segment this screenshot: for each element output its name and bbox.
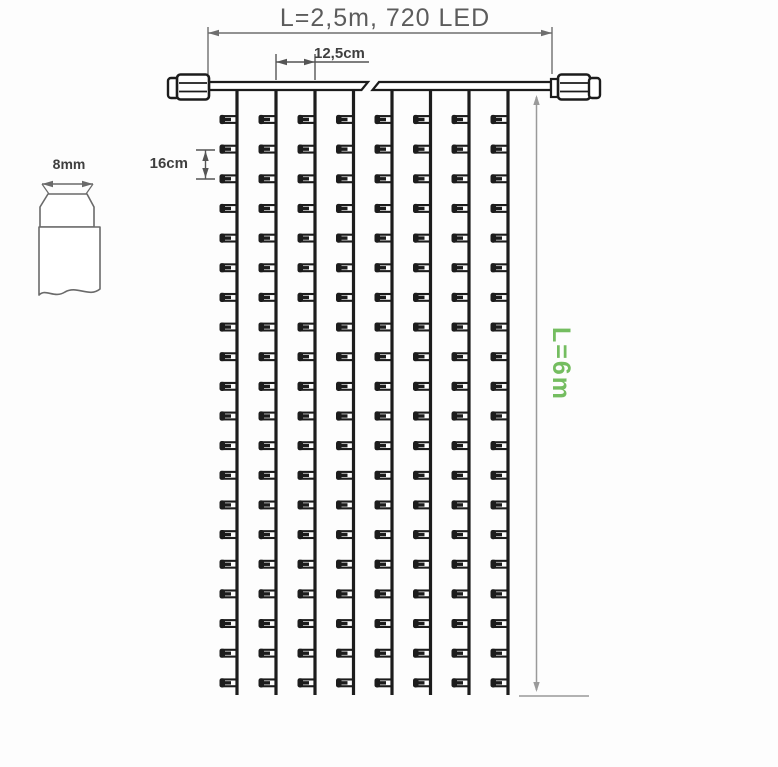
- led-bulb: [259, 530, 276, 539]
- led-bulb: [298, 619, 315, 628]
- led-bulb: [413, 145, 430, 154]
- connector-left-body: [177, 75, 209, 100]
- led-bulb: [298, 382, 315, 391]
- led-bulb: [413, 441, 430, 450]
- led-bulb: [336, 204, 353, 213]
- led-bulb: [413, 234, 430, 243]
- led-bulb: [298, 411, 315, 420]
- cable-right-segment: [373, 82, 552, 90]
- led-bulb: [220, 145, 237, 154]
- led-bulb: [336, 174, 353, 183]
- led-bulb: [491, 441, 508, 450]
- led-bulb: [413, 619, 430, 628]
- led-bulb: [491, 322, 508, 331]
- led-bulb: [336, 500, 353, 509]
- led-bulb: [491, 174, 508, 183]
- led-bulb: [298, 649, 315, 658]
- led-bulb: [259, 322, 276, 331]
- led-bulb: [336, 293, 353, 302]
- led-bulb: [413, 322, 430, 331]
- led-bulb: [259, 500, 276, 509]
- strand: [375, 89, 393, 695]
- led-bulb: [220, 174, 237, 183]
- led-bulb: [298, 530, 315, 539]
- led-bulb: [491, 145, 508, 154]
- led-bulb: [491, 530, 508, 539]
- led-bulb: [259, 174, 276, 183]
- led-bulb: [452, 411, 469, 420]
- led-bulb: [259, 471, 276, 480]
- led-bulb: [336, 352, 353, 361]
- strand: [491, 89, 509, 695]
- led-bulb: [452, 263, 469, 272]
- led-bulb: [298, 115, 315, 124]
- led-bulb: [259, 619, 276, 628]
- led-bulb: [298, 263, 315, 272]
- strand: [413, 89, 431, 695]
- top-width-dimension: [208, 27, 552, 74]
- led-bulb: [259, 382, 276, 391]
- led-bulb: [375, 589, 392, 598]
- led-bulb: [259, 649, 276, 658]
- led-bulb: [336, 619, 353, 628]
- led-bulb: [259, 234, 276, 243]
- led-bulb: [413, 204, 430, 213]
- bulb-body: [39, 227, 100, 295]
- led-bulb: [220, 293, 237, 302]
- led-bulb: [452, 560, 469, 569]
- led-bulb: [452, 471, 469, 480]
- diagram-canvas: L=2,5m, 720 LED 12,5cm 16cm 8mm L=6m: [0, 0, 778, 767]
- led-bulb: [220, 411, 237, 420]
- led-bulb: [375, 411, 392, 420]
- led-bulb: [375, 293, 392, 302]
- strand: [220, 89, 238, 695]
- led-bulb: [336, 530, 353, 539]
- led-bulb: [491, 204, 508, 213]
- led-bulb: [336, 589, 353, 598]
- led-bulb: [375, 174, 392, 183]
- connector-right-body: [558, 75, 590, 100]
- led-bulb: [413, 293, 430, 302]
- bulb-dome: [40, 194, 94, 227]
- led-bulb: [220, 382, 237, 391]
- led-bulb: [259, 204, 276, 213]
- led-bulb: [491, 234, 508, 243]
- led-bulb: [220, 441, 237, 450]
- led-bulb: [413, 263, 430, 272]
- led-bulb: [413, 560, 430, 569]
- strand: [298, 89, 316, 695]
- led-bulb: [452, 234, 469, 243]
- led-bulb: [491, 678, 508, 687]
- led-bulb: [413, 174, 430, 183]
- led-bulb: [491, 115, 508, 124]
- led-bulb: [298, 293, 315, 302]
- connector-right: [551, 75, 600, 100]
- led-bulb: [413, 382, 430, 391]
- led-bulb: [220, 263, 237, 272]
- led-bulb: [491, 649, 508, 658]
- led-bulb: [220, 352, 237, 361]
- led-bulb: [413, 411, 430, 420]
- led-bulb: [375, 678, 392, 687]
- led-bulb: [452, 322, 469, 331]
- led-bulb: [491, 382, 508, 391]
- led-bulb: [375, 263, 392, 272]
- led-bulb: [375, 382, 392, 391]
- led-bulb: [336, 115, 353, 124]
- led-bulb: [220, 471, 237, 480]
- led-bulb: [375, 352, 392, 361]
- led-bulb: [452, 500, 469, 509]
- led-bulb: [452, 352, 469, 361]
- led-bulb: [413, 115, 430, 124]
- led-bulb: [413, 500, 430, 509]
- led-bulb: [298, 500, 315, 509]
- led-bulb: [298, 678, 315, 687]
- led-bulb: [336, 678, 353, 687]
- led-bulb: [220, 649, 237, 658]
- led-bulb: [491, 471, 508, 480]
- led-bulb: [336, 471, 353, 480]
- led-bulb: [491, 589, 508, 598]
- led-bulb: [452, 382, 469, 391]
- led-bulb: [452, 649, 469, 658]
- led-bulb: [452, 174, 469, 183]
- led-bulb: [375, 560, 392, 569]
- led-bulb: [452, 145, 469, 154]
- led-bulb: [220, 204, 237, 213]
- led-bulb: [452, 293, 469, 302]
- led-bulb: [452, 589, 469, 598]
- curtain-diagram: [0, 0, 778, 767]
- led-bulb: [375, 471, 392, 480]
- led-bulb: [259, 411, 276, 420]
- connector-left: [168, 75, 209, 100]
- led-bulb: [336, 441, 353, 450]
- led-bulb: [336, 411, 353, 420]
- led-bulb: [298, 352, 315, 361]
- led-bulb: [491, 263, 508, 272]
- led-bulb: [375, 649, 392, 658]
- led-bulb: [220, 589, 237, 598]
- led-spacing-label: 16cm: [144, 155, 188, 172]
- led-bulb: [259, 589, 276, 598]
- led-bulb: [491, 411, 508, 420]
- led-bulb: [259, 263, 276, 272]
- led-bulb: [413, 352, 430, 361]
- led-bulb: [452, 678, 469, 687]
- led-bulb: [298, 560, 315, 569]
- led-bulb: [491, 352, 508, 361]
- led-bulb: [259, 115, 276, 124]
- led-bulb: [413, 589, 430, 598]
- led-bulb: [375, 441, 392, 450]
- led-bulb: [452, 530, 469, 539]
- bulb-detail: [39, 181, 100, 295]
- led-bulb: [336, 560, 353, 569]
- led-bulb: [375, 145, 392, 154]
- cable-left-segment: [209, 82, 368, 90]
- led-bulb: [375, 530, 392, 539]
- led-bulb: [298, 322, 315, 331]
- led-bulb: [336, 145, 353, 154]
- power-cable: [209, 82, 551, 90]
- strand: [336, 89, 354, 695]
- led-bulb: [452, 204, 469, 213]
- led-bulb: [491, 619, 508, 628]
- led-bulb: [375, 234, 392, 243]
- led-bulb: [491, 560, 508, 569]
- led-bulb: [336, 322, 353, 331]
- led-bulb: [298, 145, 315, 154]
- drop-length-label: L=6m: [546, 327, 575, 427]
- strand: [452, 89, 470, 695]
- led-bulb: [491, 293, 508, 302]
- led-bulb: [375, 619, 392, 628]
- led-bulb: [413, 649, 430, 658]
- led-bulb: [298, 174, 315, 183]
- led-bulb: [491, 500, 508, 509]
- led-bulb: [220, 322, 237, 331]
- led-bulb: [375, 322, 392, 331]
- led-bulb: [336, 382, 353, 391]
- strand-spacing-label: 12,5cm: [314, 45, 365, 62]
- led-bulb: [259, 145, 276, 154]
- led-bulb: [336, 234, 353, 243]
- led-bulb: [452, 115, 469, 124]
- title-dimension-label: L=2,5m, 720 LED: [200, 4, 570, 33]
- led-bulb: [220, 560, 237, 569]
- led-bulb: [298, 234, 315, 243]
- led-bulb: [298, 441, 315, 450]
- led-bulb: [220, 678, 237, 687]
- led-bulb: [220, 115, 237, 124]
- led-bulb: [259, 352, 276, 361]
- led-bulb: [336, 263, 353, 272]
- led-bulb: [259, 678, 276, 687]
- led-bulb: [220, 500, 237, 509]
- bulb-width-label: 8mm: [46, 156, 92, 172]
- led-bulb: [298, 589, 315, 598]
- led-bulb: [259, 441, 276, 450]
- led-bulb: [375, 500, 392, 509]
- led-bulb: [375, 115, 392, 124]
- led-bulb: [220, 619, 237, 628]
- led-bulb: [220, 234, 237, 243]
- led-bulb: [336, 649, 353, 658]
- led-bulb: [452, 619, 469, 628]
- led-bulb: [375, 204, 392, 213]
- led-spacing-dimension: [196, 150, 215, 179]
- led-bulb: [413, 530, 430, 539]
- led-bulb: [298, 204, 315, 213]
- led-bulb: [452, 441, 469, 450]
- connector-right-cap: [589, 78, 600, 98]
- led-bulb: [259, 560, 276, 569]
- strand: [259, 89, 277, 695]
- led-bulb: [413, 678, 430, 687]
- led-bulb: [298, 471, 315, 480]
- led-bulb: [413, 471, 430, 480]
- led-bulb: [220, 530, 237, 539]
- led-bulb: [259, 293, 276, 302]
